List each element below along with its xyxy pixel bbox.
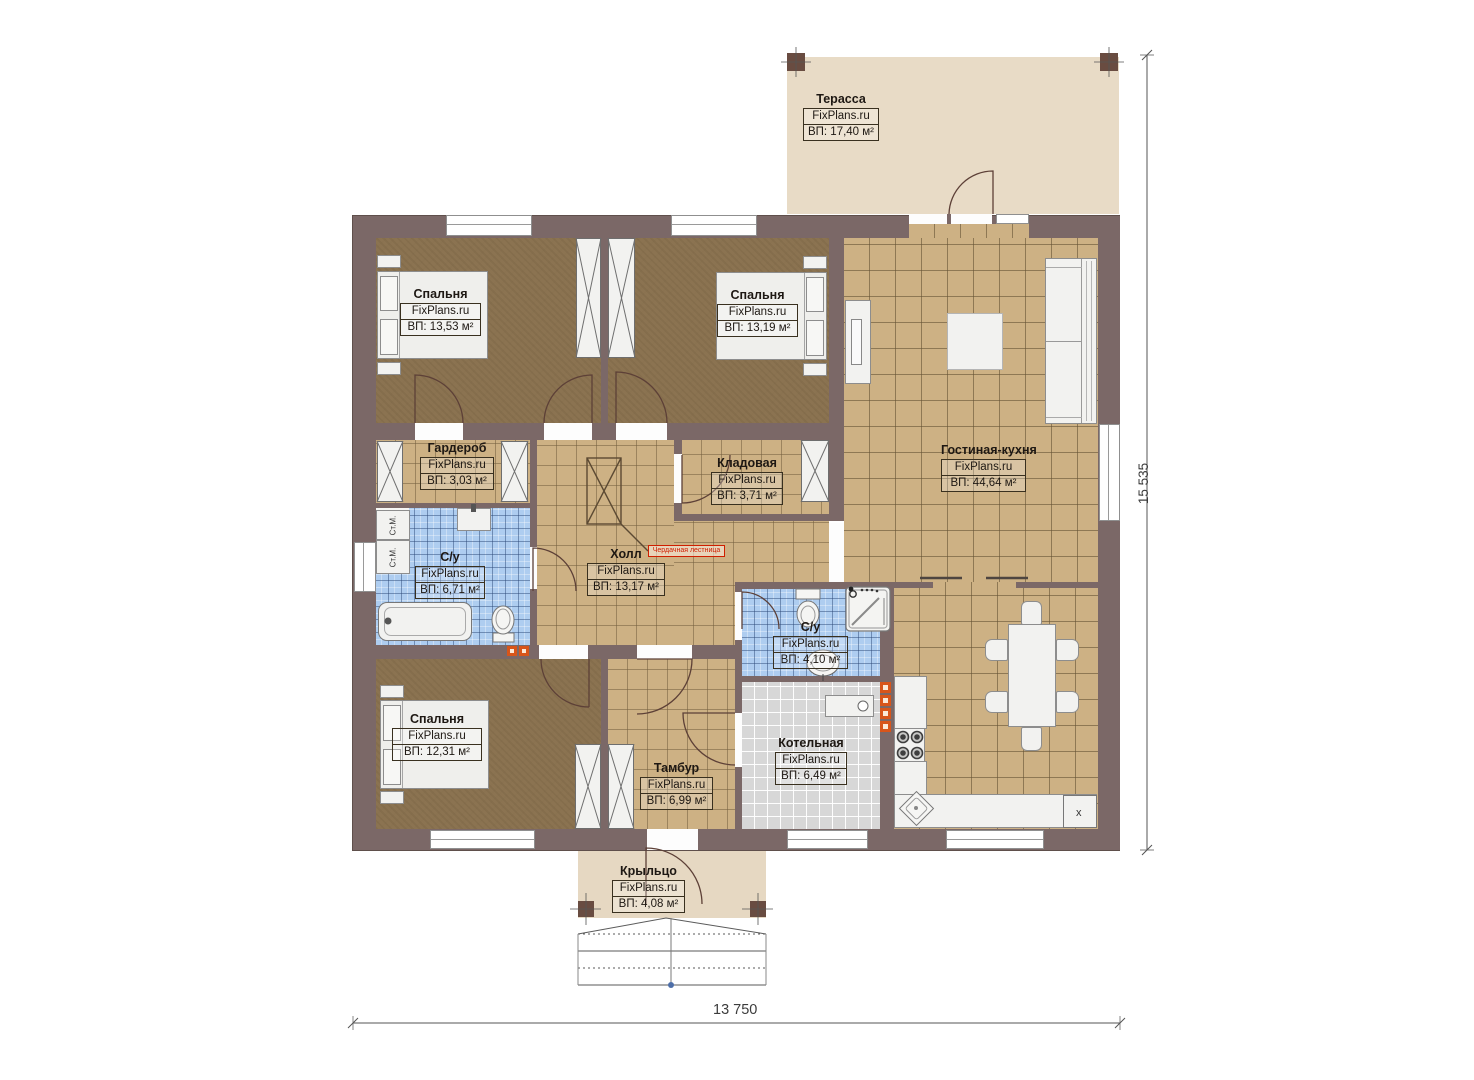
svg-text:x: x: [1076, 807, 1082, 819]
